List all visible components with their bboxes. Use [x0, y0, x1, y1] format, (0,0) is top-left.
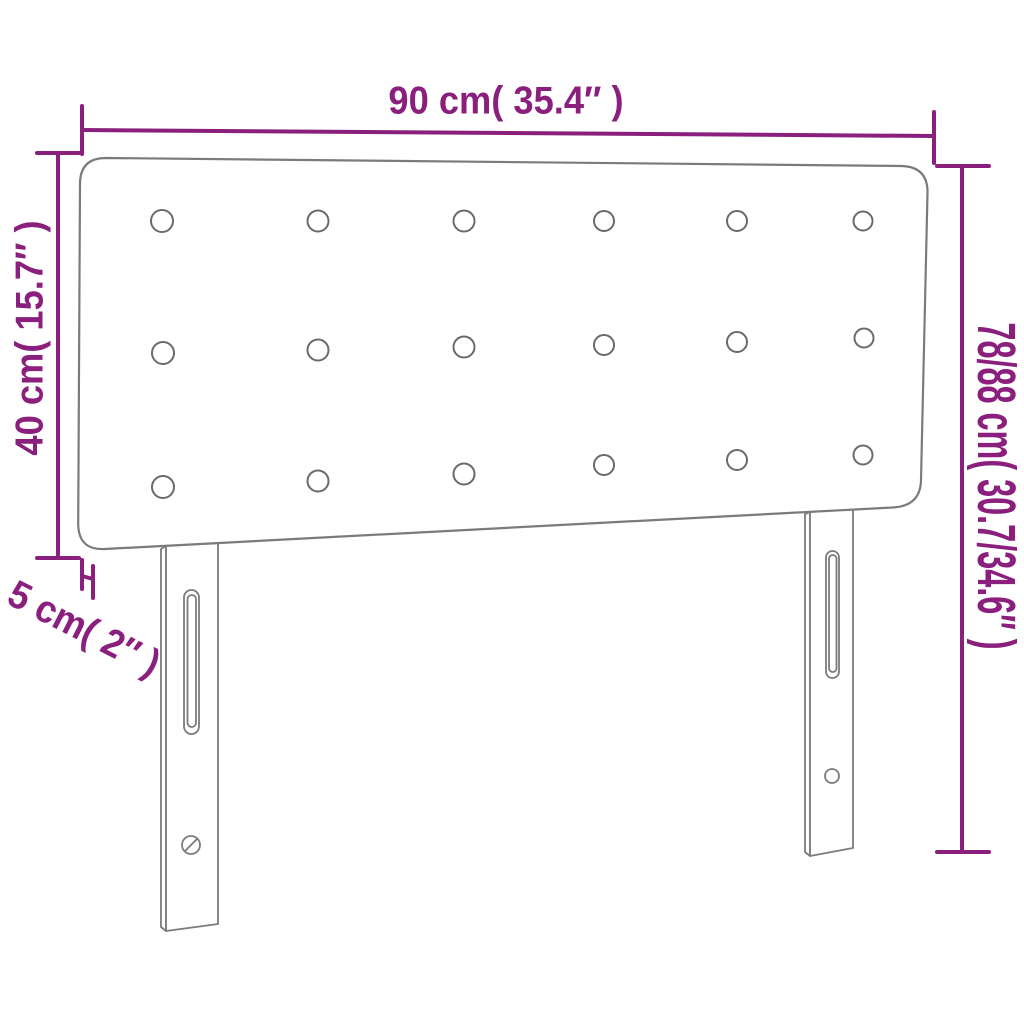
headboard-line-art — [0, 0, 1024, 1024]
left-leg-slot-inner — [188, 595, 197, 727]
tufting-button — [308, 471, 329, 492]
tufting-button — [854, 446, 873, 465]
tufting-button — [855, 329, 874, 348]
tufting-button — [454, 464, 475, 485]
headboard-outline — [78, 158, 927, 549]
total-height-dimension-label: 78/88 cm( 30.7/34.6″ ) — [969, 322, 1023, 649]
tufting-button — [454, 211, 475, 232]
upholstered-height-dimension-label: 40 cm( 15.7″ ) — [11, 220, 50, 455]
tufting-button — [151, 210, 173, 232]
tufting-button — [152, 476, 174, 498]
tufting-button — [152, 342, 174, 364]
tufting-button — [727, 332, 747, 352]
right-leg-screw — [825, 769, 839, 783]
tufting-button — [594, 455, 614, 475]
tufting-button — [308, 211, 329, 232]
left-leg — [161, 543, 218, 931]
tufting-button — [727, 450, 747, 470]
right-leg — [805, 509, 853, 856]
tufting-button — [454, 337, 475, 358]
right-leg-slot-inner — [829, 555, 837, 672]
dimension-diagram: 90 cm( 35.4″ ) 40 cm( 15.7″ ) 78/88 cm( … — [0, 0, 1024, 1024]
tufting-button — [594, 335, 614, 355]
thickness-dimension — [82, 560, 93, 598]
tufting-button — [594, 211, 614, 231]
tufting-button — [308, 340, 329, 361]
tufting-button — [727, 211, 747, 231]
width-dimension-label: 90 cm( 35.4″ ) — [388, 82, 623, 121]
tufting-button — [854, 212, 873, 231]
width-dimension-line — [82, 130, 934, 136]
